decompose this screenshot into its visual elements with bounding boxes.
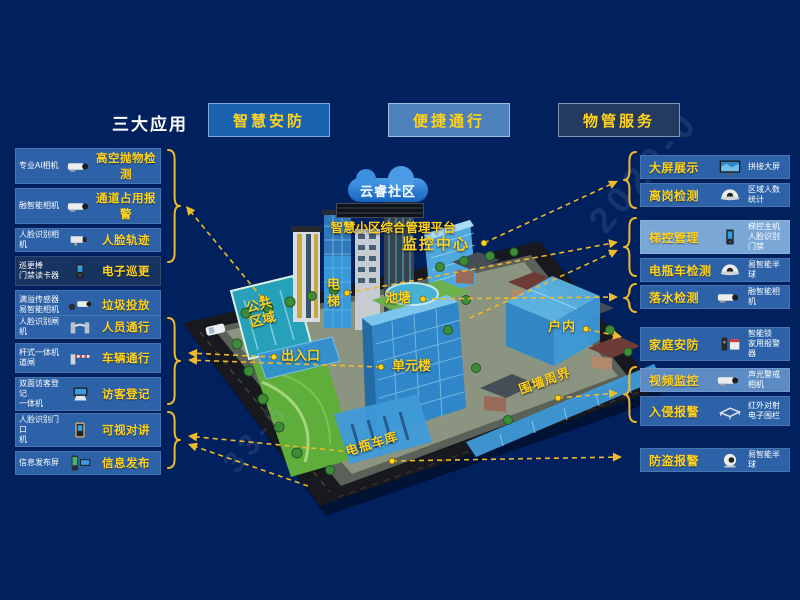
- feature-label: 人脸轨迹: [95, 232, 157, 248]
- right-panel-group-perimeter: 视频监控声光警戒相机入侵报警红外对射 电子围栏: [640, 368, 790, 430]
- device-name: 人脸识别相机: [19, 230, 65, 250]
- feature-label: 防盗报警: [644, 452, 715, 469]
- feature-label: 电瓶车检测: [644, 262, 715, 279]
- tab-convenient-access[interactable]: 便捷通行: [388, 103, 510, 137]
- feature-label: 家庭安防: [644, 336, 715, 353]
- feature-label: 垃圾投放: [95, 297, 157, 313]
- page-title: 三大应用: [112, 110, 188, 135]
- panel-row: 信息发布屏信息发布: [15, 451, 161, 475]
- device-name: 杆式一体机 道闸: [19, 348, 65, 368]
- panel-row: 落水检测融智能相机: [640, 285, 790, 309]
- access-reader-icon: [65, 261, 95, 281]
- feature-label: 人员通行: [95, 319, 157, 335]
- device-name: 融智能相机: [745, 287, 786, 307]
- visitor-terminal-icon: [65, 384, 95, 404]
- device-name: 人脸识别门口 机: [19, 415, 65, 445]
- device-name: 人脸识别闸机: [19, 317, 65, 337]
- bullet-camera-icon: [715, 370, 745, 390]
- panel-row: 双面访客登记 一体机访客登记: [15, 377, 161, 411]
- map-label-monitor-center: 监控中心: [402, 236, 470, 253]
- dome-camera-icon: [715, 185, 745, 205]
- panel-row: 电瓶车检测易智能半球: [640, 258, 790, 282]
- map-label-indoor: 户内: [548, 320, 576, 335]
- device-name: 智能锁 家用报警器: [745, 329, 786, 359]
- sensor-camera-icon: [65, 295, 95, 315]
- device-name: 梯控主机 人脸识别门禁: [745, 222, 786, 252]
- feature-label: 落水检测: [644, 289, 715, 306]
- server-box: [336, 203, 424, 218]
- panel-row: 梯控管理梯控主机 人脸识别门禁: [640, 220, 790, 254]
- map-label-elevator: 电梯: [324, 277, 339, 311]
- device-name: 融智能相机: [19, 201, 65, 211]
- barrier-gate-icon: [65, 348, 95, 368]
- device-name: 信息发布屏: [19, 458, 65, 468]
- dome-camera-icon: [715, 260, 745, 280]
- perimeter-fence-icon: [715, 401, 745, 421]
- left-panel-group-access: 人脸识别闸机人员通行杆式一体机 道闸车辆通行双面访客登记 一体机访客登记: [15, 315, 161, 415]
- device-name: 拼接大屏: [745, 162, 786, 172]
- right-panel-group-drowning: 落水检测融智能相机: [640, 285, 790, 313]
- device-name: 专业AI相机: [19, 161, 65, 171]
- device-name: 满溢传感器 易智能相机: [19, 295, 65, 315]
- panel-row: 大屏展示拼接大屏: [640, 155, 790, 179]
- feature-label: 电子巡更: [95, 263, 157, 279]
- smart-community-diagram: 2020-0 33-6: [0, 0, 800, 600]
- feature-label: 大屏展示: [644, 159, 715, 176]
- platform-name: 智慧小区综合管理平台: [318, 217, 468, 236]
- panel-row: 视频监控声光警戒相机: [640, 368, 790, 392]
- device-name: 红外对射 电子围栏: [745, 401, 786, 421]
- door-station-icon: [65, 420, 95, 440]
- device-name: 区域人数统计: [745, 185, 786, 205]
- feature-label: 视频监控: [644, 372, 715, 389]
- turret-camera-icon: [715, 450, 745, 470]
- device-name: 易智能半球: [745, 450, 786, 470]
- feature-label: 高空抛物检测: [95, 150, 157, 182]
- device-name: 声光警戒相机: [745, 370, 786, 390]
- turnstile-icon: [65, 317, 95, 337]
- right-panel-group-elevator: 梯控管理梯控主机 人脸识别门禁电瓶车检测易智能半球: [640, 220, 790, 286]
- elevator-terminal-icon: [715, 227, 745, 247]
- feature-label: 入侵报警: [644, 403, 715, 420]
- panel-row: 人脸识别相机人脸轨迹: [15, 228, 161, 252]
- video-wall-icon: [715, 157, 745, 177]
- feature-label: 车辆通行: [95, 350, 157, 366]
- panel-row: 巡更棒 门禁读卡器电子巡更: [15, 256, 161, 286]
- map-label-unit-building: 单元楼: [392, 359, 431, 374]
- left-panel-group-surveillance: 专业AI相机高空抛物检测融智能相机通道占用报警人脸识别相机人脸轨迹巡更棒 门禁读…: [15, 148, 161, 324]
- panel-row: 家庭安防智能锁 家用报警器: [640, 327, 790, 361]
- feature-label: 通道占用报警: [95, 190, 157, 222]
- panel-row: 专业AI相机高空抛物检测: [15, 148, 161, 184]
- bullet-camera-icon: [65, 156, 95, 176]
- device-name: 双面访客登记 一体机: [19, 379, 65, 409]
- right-panel-group-display: 大屏展示拼接大屏离岗检测区域人数统计: [640, 155, 790, 211]
- feature-label: 可视对讲: [95, 422, 157, 438]
- panel-row: 人脸识别闸机人员通行: [15, 315, 161, 339]
- feature-label: 访客登记: [95, 386, 157, 402]
- right-panel-group-antitheft: 防盗报警易智能半球: [640, 448, 790, 476]
- right-panel-group-home: 家庭安防智能锁 家用报警器: [640, 327, 790, 365]
- panel-row: 杆式一体机 道闸车辆通行: [15, 343, 161, 373]
- tab-smart-security[interactable]: 智慧安防: [208, 103, 330, 137]
- bullet-camera-icon: [715, 287, 745, 307]
- feature-label: 离岗检测: [644, 187, 715, 204]
- lock-siren-icon: [715, 334, 745, 354]
- panel-row: 离岗检测区域人数统计: [640, 183, 790, 207]
- panel-row: 融智能相机通道占用报警: [15, 188, 161, 224]
- cloud-label: 云睿社区: [360, 181, 416, 200]
- panel-row: 人脸识别门口 机可视对讲: [15, 413, 161, 447]
- map-label-entrance: 出入口: [281, 349, 320, 364]
- left-panel-group-intercom: 人脸识别门口 机可视对讲信息发布屏信息发布: [15, 413, 161, 479]
- tab-property-service[interactable]: 物管服务: [558, 103, 680, 137]
- bullet-camera-icon: [65, 196, 95, 216]
- cloud-badge: 云睿社区: [348, 178, 428, 202]
- device-name: 易智能半球: [745, 260, 786, 280]
- info-kiosk-icon: [65, 453, 95, 473]
- device-name: 巡更棒 门禁读卡器: [19, 261, 65, 281]
- panel-row: 防盗报警易智能半球: [640, 448, 790, 472]
- feature-label: 信息发布: [95, 455, 157, 471]
- feature-label: 梯控管理: [644, 229, 715, 246]
- box-camera-icon: [65, 230, 95, 250]
- map-label-pond: 池塘: [385, 291, 411, 306]
- panel-row: 入侵报警红外对射 电子围栏: [640, 396, 790, 426]
